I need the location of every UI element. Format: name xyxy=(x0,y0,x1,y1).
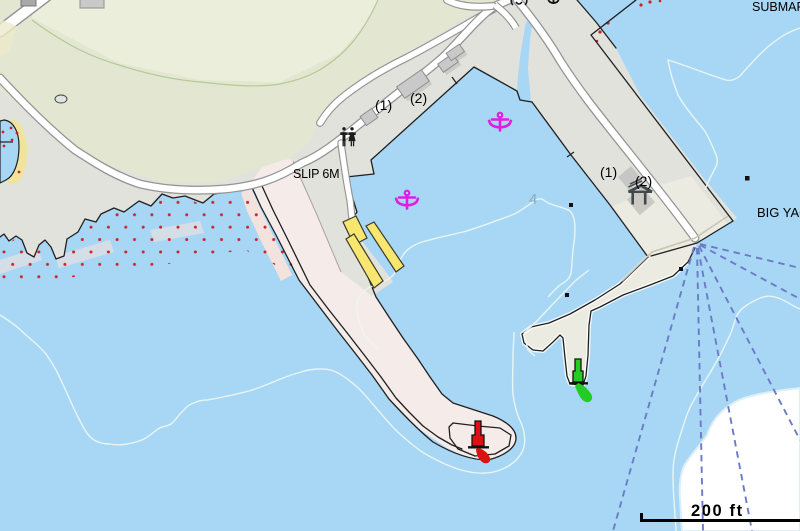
svg-text:SLIP 6M: SLIP 6M xyxy=(293,167,339,181)
svg-text:(2): (2) xyxy=(410,90,427,106)
svg-text:SUBMARINE: SUBMARINE xyxy=(752,0,800,14)
svg-text:(1): (1) xyxy=(600,164,617,180)
svg-text:(2): (2) xyxy=(635,173,652,189)
svg-text:4: 4 xyxy=(529,191,537,208)
svg-text:BIG YACHT: BIG YACHT xyxy=(757,205,800,220)
svg-text:(1): (1) xyxy=(375,97,392,113)
svg-text:200 ft: 200 ft xyxy=(691,502,744,520)
